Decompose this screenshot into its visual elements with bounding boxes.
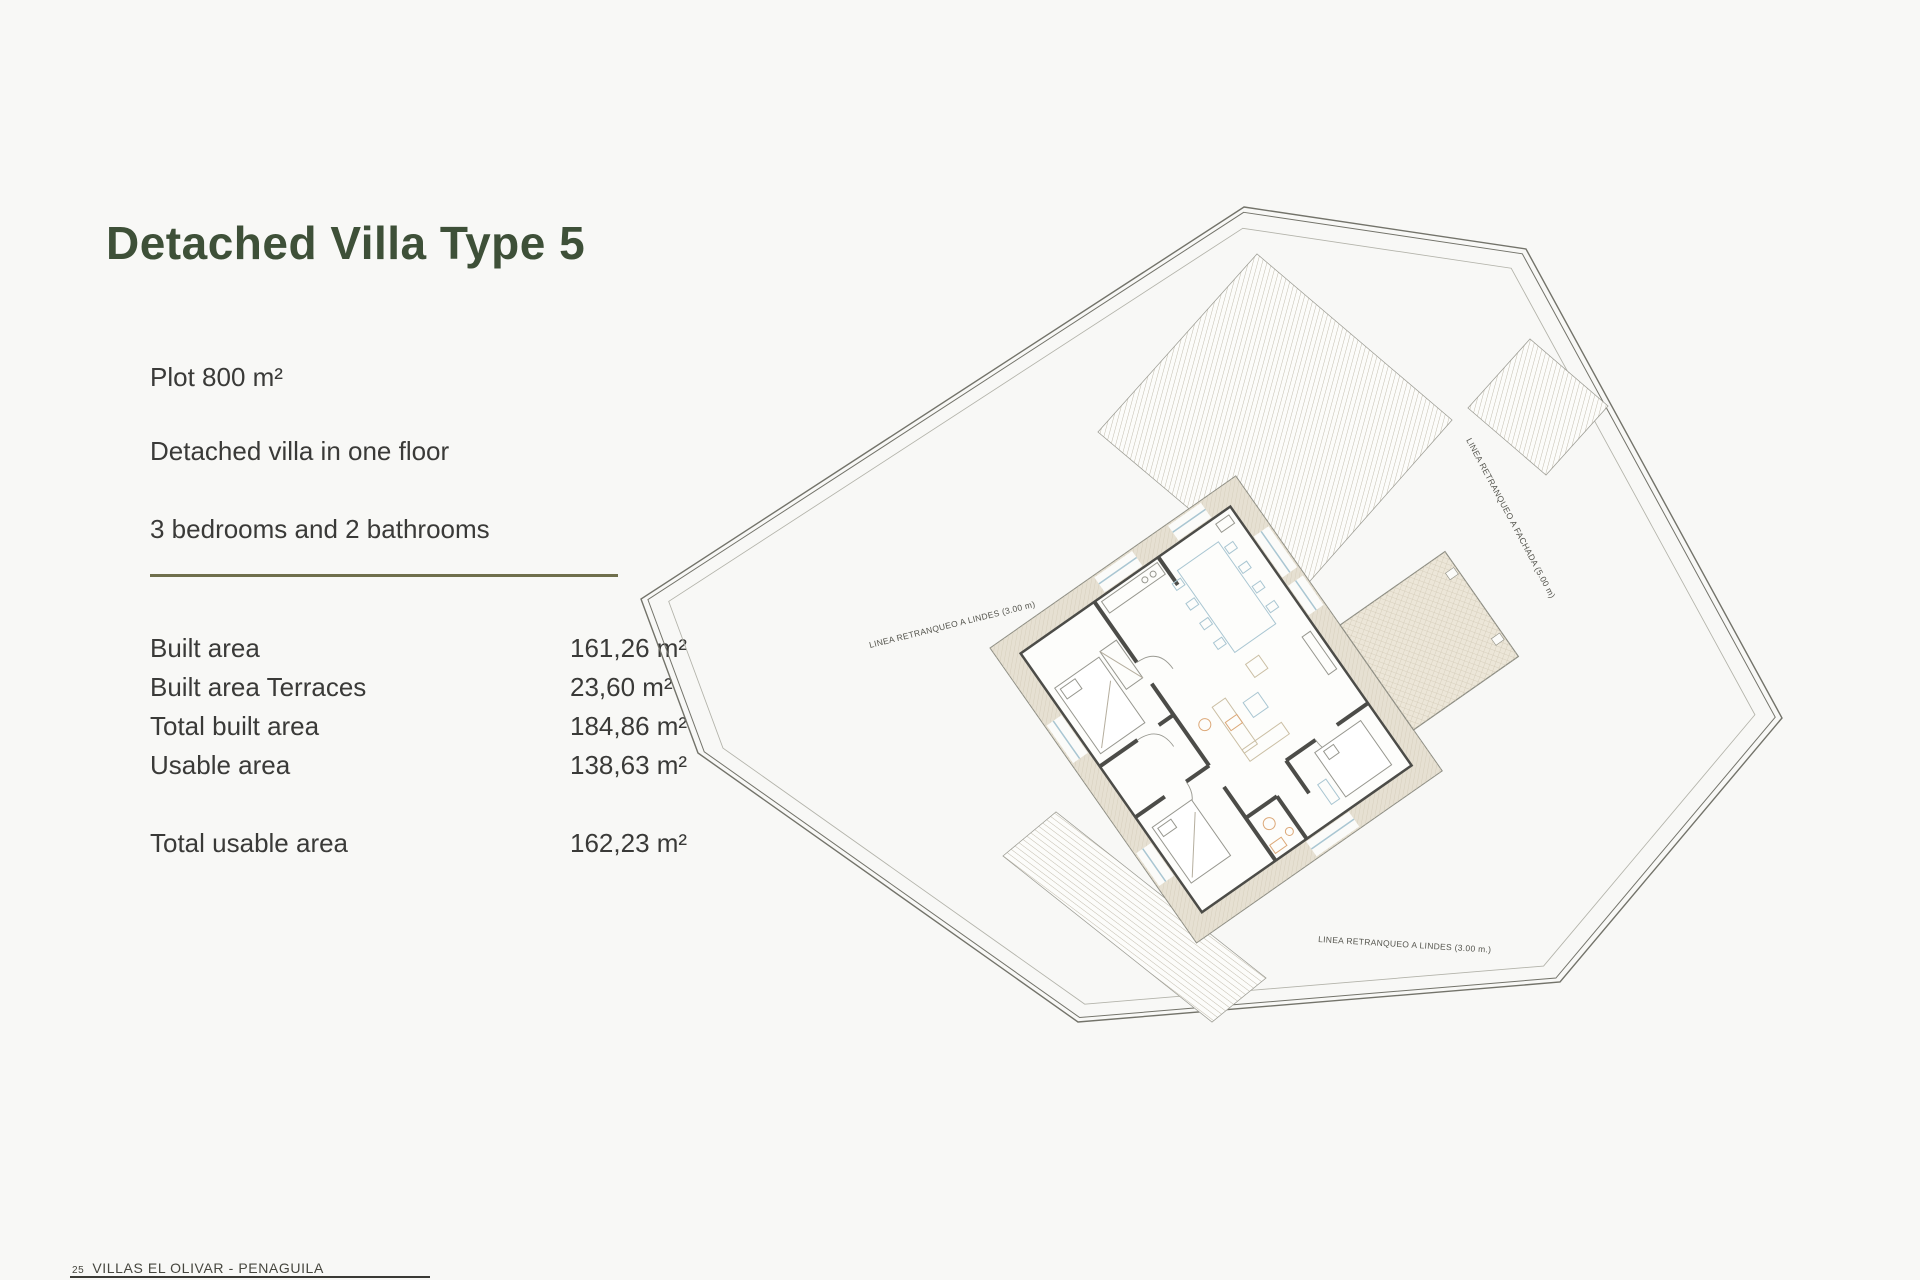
site-plan-drawing: LINEA RETRANQUEO A LINDES (3.00 m) LINEA… — [0, 0, 1920, 1280]
setback-label-bottom: LINEA RETRANQUEO A LINDES (3.00 m.) — [1318, 934, 1492, 955]
brochure-page: { "header": { "title": "Detached Villa T… — [0, 0, 1920, 1280]
